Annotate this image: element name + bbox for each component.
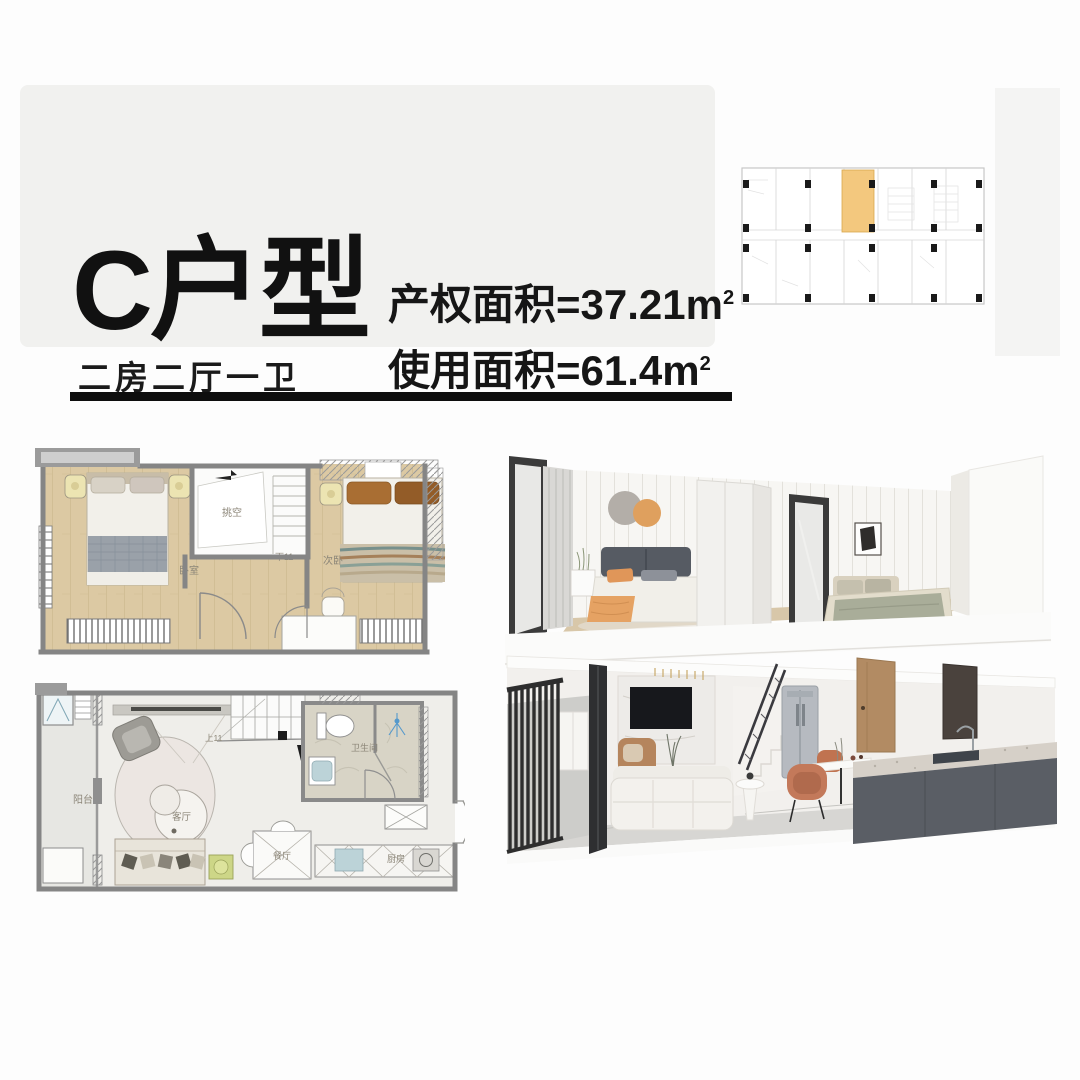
- bathroom-label: 卫生间: [351, 742, 378, 753]
- title-underline: [70, 392, 732, 401]
- void-label: 挑空: [222, 506, 242, 519]
- dining-label: 餐厅: [273, 850, 291, 861]
- hall-cabinet: [385, 805, 427, 829]
- low-cabinet: [282, 616, 356, 650]
- tv-screen: [630, 687, 692, 729]
- kitchen-counter: [315, 845, 453, 877]
- master-bed: [87, 473, 168, 585]
- lamp: [327, 490, 335, 498]
- master-bedroom-label: 卧室: [179, 564, 199, 577]
- sqm-superscript: 2: [723, 287, 734, 309]
- render-upper-bedrooms: [503, 430, 1055, 670]
- vent-grille: [75, 695, 91, 719]
- kettle: [747, 773, 754, 780]
- wardrobe-shelf: [365, 462, 401, 478]
- wall-art-frame: [855, 523, 881, 555]
- usable-area-line: 使用面积=61.4m2: [388, 337, 733, 398]
- lower-floor-plan: 阳台 客厅: [35, 683, 465, 913]
- stove-icon: [413, 849, 439, 871]
- second-bedroom-label: 次卧: [323, 554, 343, 567]
- wall-decor-circle-orange: [633, 499, 661, 527]
- upper-ledge-inner: [41, 452, 134, 463]
- entry-door: [455, 801, 465, 843]
- window-middle: [789, 494, 829, 632]
- wall-block: [35, 683, 67, 695]
- living-room-label: 客厅: [172, 811, 192, 823]
- stairwell-void: 挑空: [192, 467, 308, 557]
- stairs-up-label: 上11: [205, 733, 223, 743]
- exterior-hatch: [427, 468, 443, 560]
- unit-type-title: C户型: [72, 235, 368, 347]
- lamp: [175, 482, 183, 490]
- upper-floor-plan: 挑空 下11 卧室: [35, 446, 447, 666]
- window-left: [509, 456, 573, 642]
- sofa: [115, 839, 205, 885]
- kitchen-label: 厨房: [387, 853, 405, 864]
- poster-canvas: C户型 二房二厅一卫 产权面积=37.21m2 使用面积=61.4m2: [0, 0, 1080, 1080]
- building-key-plan: [738, 160, 988, 312]
- render-lower-living: [505, 646, 1058, 864]
- balcony-window-wall: [93, 695, 102, 887]
- white-sofa: [611, 766, 733, 830]
- right-wall: [951, 456, 1043, 628]
- wood-door: [857, 658, 895, 752]
- side-table-green: [209, 855, 233, 879]
- wardrobe-partition: [697, 480, 771, 630]
- background-strip: [995, 88, 1060, 356]
- nightstand-3d: [571, 570, 595, 596]
- kitchen-sink-icon: [335, 849, 363, 871]
- toilet-icon: [317, 713, 354, 739]
- property-area-line: 产权面积=37.21m2: [388, 271, 733, 332]
- throw-blanket: [623, 744, 643, 762]
- highlighted-unit: [842, 170, 874, 232]
- header-card: C户型 二房二厅一卫 产权面积=37.21m2 使用面积=61.4m2: [20, 85, 715, 347]
- balcony-cabinet: [43, 848, 83, 883]
- lamp: [71, 482, 79, 490]
- bathroom: 卫生间: [303, 695, 428, 800]
- washing-machine: [43, 695, 73, 725]
- balcony-label: 阳台: [73, 793, 93, 806]
- door-handle: [861, 706, 865, 710]
- sqm-superscript: 2: [700, 353, 711, 375]
- sink-icon: [309, 757, 335, 785]
